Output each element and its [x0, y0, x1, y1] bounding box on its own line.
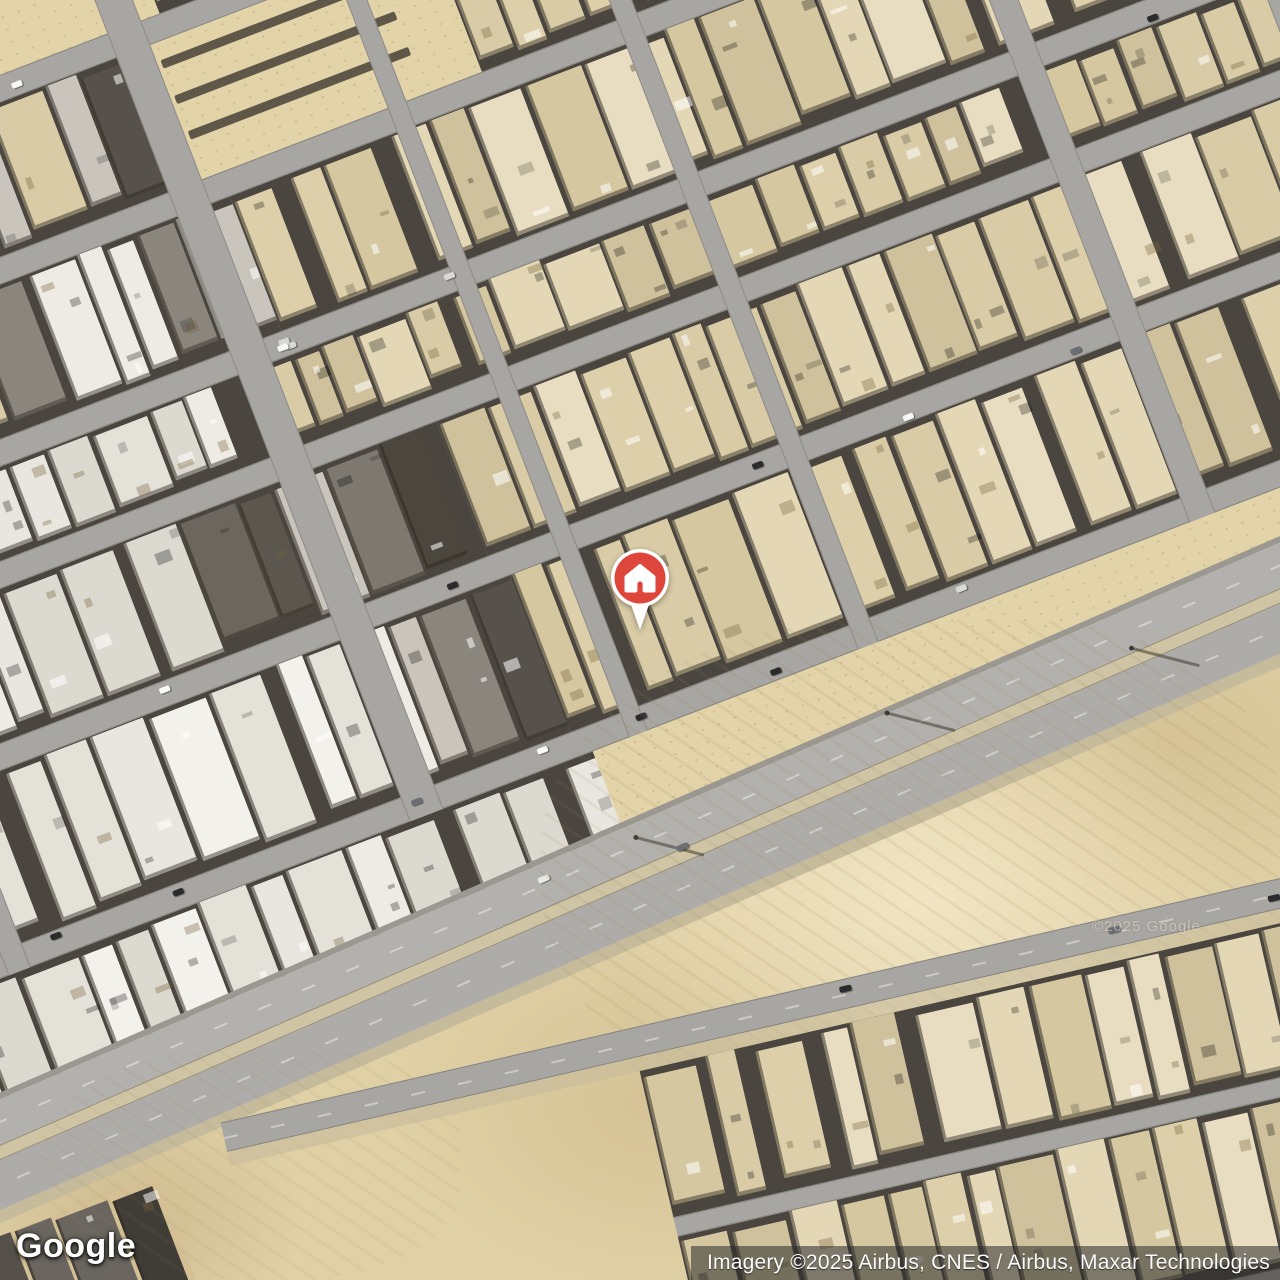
satellite-map-viewport[interactable]: Google Imagery ©2025 Airbus, CNES / Airb…	[0, 0, 1280, 1280]
attribution-text: Imagery ©2025 Airbus, CNES / Airbus, Max…	[707, 1251, 1270, 1275]
google-logo[interactable]: Google	[16, 1227, 136, 1266]
attribution-bar: Imagery ©2025 Airbus, CNES / Airbus, Max…	[691, 1246, 1280, 1280]
location-pin[interactable]	[607, 545, 673, 633]
map-imagery	[0, 0, 1280, 1280]
google-watermark: ©2025 Google	[1092, 918, 1201, 935]
